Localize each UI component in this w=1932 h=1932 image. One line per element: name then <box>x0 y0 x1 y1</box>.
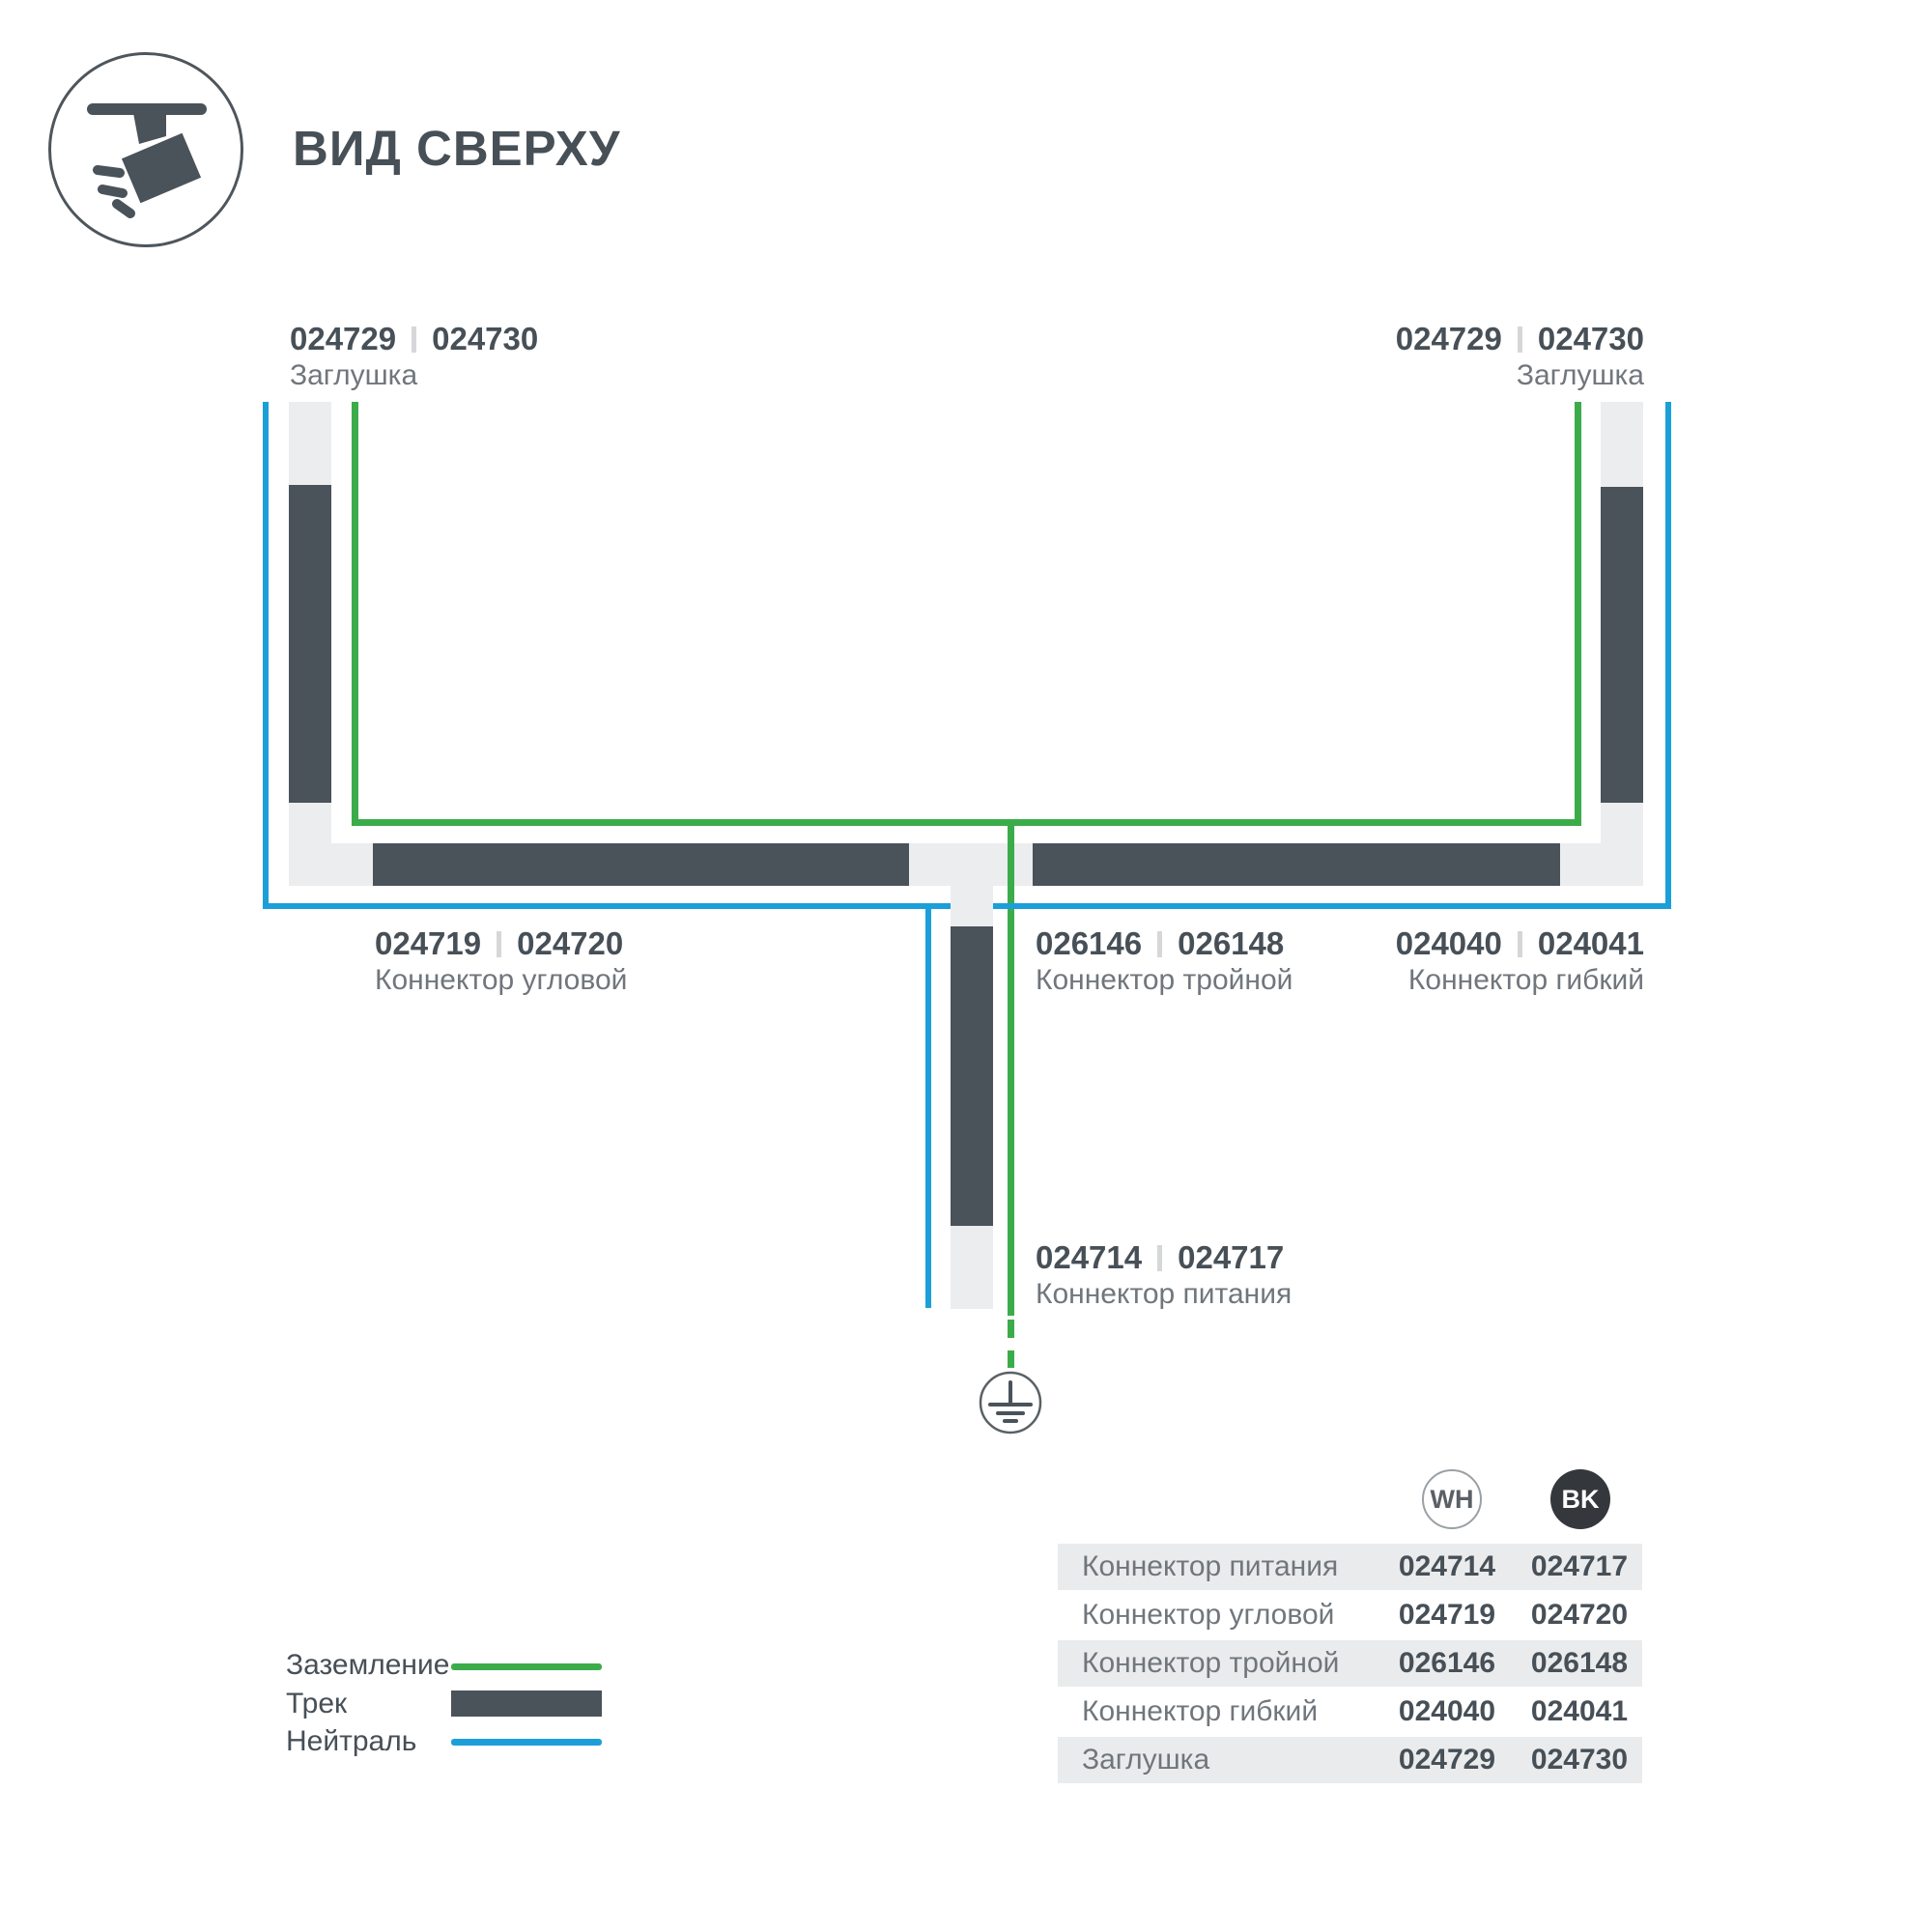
track-stem-vertical <box>951 926 993 1226</box>
track-horizontal-right <box>1033 843 1560 886</box>
label-triple-connector: 026146 026148 Коннектор тройной <box>1036 925 1293 996</box>
part-name: Коннектор угловой <box>1082 1592 1334 1638</box>
code-divider <box>1157 1245 1162 1271</box>
endcap-top-right <box>1601 402 1643 487</box>
track-right-vertical <box>1601 487 1643 803</box>
table-row: Коннектор питания 024714 024717 <box>1058 1544 1642 1590</box>
color-column-bk-badge: BK <box>1550 1469 1610 1529</box>
power-name: Коннектор питания <box>1036 1279 1292 1310</box>
part-code-wh: 024719 <box>1399 1592 1495 1638</box>
triple-connector-stem <box>951 886 993 927</box>
code-divider <box>497 931 501 957</box>
flex-name: Коннектор гибкий <box>1408 965 1644 996</box>
endcap-code-wh: 024729 <box>1396 321 1502 357</box>
track-horizontal-left <box>373 843 909 886</box>
track-left-vertical <box>289 485 331 803</box>
flex-code-bk: 024041 <box>1538 925 1644 962</box>
neutral-wire-left-vertical <box>263 402 269 909</box>
label-endcap-top-left: 024729 024730 Заглушка <box>290 321 538 391</box>
label-power-connector: 024714 024717 Коннектор питания <box>1036 1239 1292 1310</box>
corner-code-bk: 024720 <box>517 925 623 962</box>
color-column-wh-badge: WH <box>1422 1469 1482 1529</box>
code-divider <box>1157 931 1162 957</box>
part-name: Коннектор питания <box>1082 1544 1338 1590</box>
ground-symbol-icon <box>978 1370 1043 1435</box>
flex-code-wh: 024040 <box>1396 925 1502 962</box>
page: ВИД СВЕРХУ 024729 <box>0 0 1932 1932</box>
part-name: Коннектор гибкий <box>1082 1689 1318 1735</box>
neutral-wire-horizontal-right <box>993 903 1671 909</box>
ground-wire-drop <box>1008 819 1014 1316</box>
table-row: Коннектор гибкий 024040 024041 <box>1058 1689 1642 1735</box>
legend-swatch-ground-line <box>451 1663 602 1670</box>
track-spotlight-icon <box>48 52 243 247</box>
table-row: Коннектор тройной 026146 026148 <box>1058 1640 1642 1687</box>
track-spotlight-glyph <box>51 55 241 244</box>
neutral-wire-right-vertical <box>1665 402 1671 909</box>
legend-label-neutral: Нейтраль <box>286 1724 416 1759</box>
legend-swatch-track-bar <box>451 1690 602 1717</box>
part-code-wh: 026146 <box>1399 1640 1495 1687</box>
corner-connector-left-horizontal <box>331 843 373 886</box>
part-code-wh: 024729 <box>1399 1737 1495 1783</box>
code-divider <box>1518 931 1522 957</box>
table-row: Коннектор угловой 024719 024720 <box>1058 1592 1642 1638</box>
endcap-code-wh: 024729 <box>290 321 396 357</box>
neutral-wire-horizontal-left <box>263 903 951 909</box>
corner-code-wh: 024719 <box>375 925 481 962</box>
part-code-wh: 024040 <box>1399 1689 1495 1735</box>
code-divider <box>412 327 416 353</box>
page-title: ВИД СВЕРХУ <box>293 122 620 176</box>
triple-name: Коннектор тройной <box>1036 965 1293 996</box>
ground-wire-left-vertical <box>352 402 358 826</box>
triple-code-wh: 026146 <box>1036 925 1142 962</box>
ground-wire-horizontal <box>352 819 1581 826</box>
code-divider <box>1518 327 1522 353</box>
part-code-bk: 024720 <box>1531 1592 1628 1638</box>
endcap-name: Заглушка <box>290 360 538 391</box>
part-code-bk: 024041 <box>1531 1689 1628 1735</box>
part-code-bk: 024717 <box>1531 1544 1628 1590</box>
neutral-wire-drop <box>925 903 931 1308</box>
corner-connector-left-vertical <box>289 803 331 886</box>
corner-connector-right-vertical <box>1601 803 1643 886</box>
endcap-code-bk: 024730 <box>432 321 538 357</box>
power-connector-cap <box>951 1226 993 1309</box>
label-corner-connector: 024719 024720 Коннектор угловой <box>375 925 627 996</box>
endcap-name: Заглушка <box>1517 360 1644 391</box>
part-name: Заглушка <box>1082 1737 1209 1783</box>
label-flex-connector: 024040 024041 Коннектор гибкий <box>1396 925 1644 996</box>
label-endcap-top-right: 024729 024730 Заглушка <box>1396 321 1644 391</box>
table-row: Заглушка 024729 024730 <box>1058 1737 1642 1783</box>
part-code-bk: 024730 <box>1531 1737 1628 1783</box>
corner-name: Коннектор угловой <box>375 965 627 996</box>
part-name: Коннектор тройной <box>1082 1640 1339 1687</box>
corner-connector-right-horizontal <box>1560 843 1601 886</box>
power-code-wh: 024714 <box>1036 1239 1142 1276</box>
legend-label-ground: Заземление <box>286 1648 449 1683</box>
triple-code-bk: 026148 <box>1178 925 1284 962</box>
legend-label-track: Трек <box>286 1687 347 1721</box>
part-code-wh: 024714 <box>1399 1544 1495 1590</box>
ground-wire-dashed <box>1008 1320 1014 1368</box>
power-code-bk: 024717 <box>1178 1239 1284 1276</box>
ground-wire-right-vertical <box>1575 402 1581 826</box>
endcap-top-left <box>289 402 331 485</box>
legend-swatch-neutral-line <box>451 1739 602 1746</box>
part-code-bk: 026148 <box>1531 1640 1628 1687</box>
endcap-code-bk: 024730 <box>1538 321 1644 357</box>
